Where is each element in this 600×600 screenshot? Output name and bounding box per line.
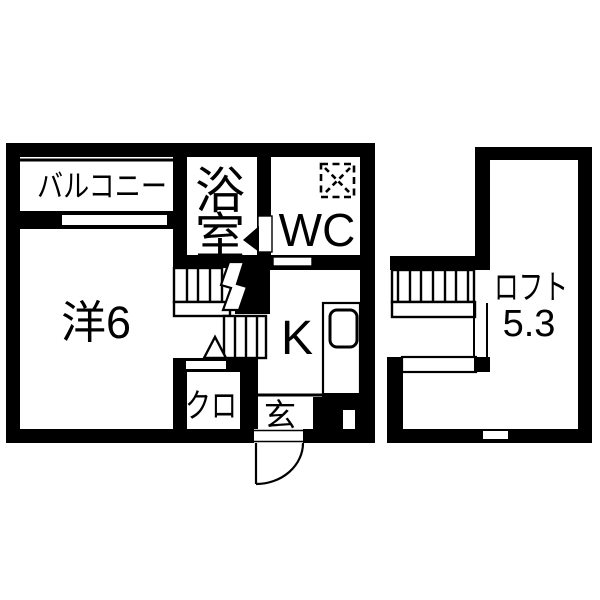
wall (355, 410, 365, 430)
sink-icon (330, 310, 357, 347)
loft-label: ロフト (494, 269, 568, 307)
stair-landing (174, 302, 230, 316)
stair-landing (392, 302, 475, 317)
floorplan-svg: バルコニー 洋6 浴 室 WC (0, 0, 600, 600)
bathroom-label-line2: 室 (195, 209, 245, 265)
door-direction-icon (243, 226, 259, 252)
wall (325, 410, 343, 430)
stair-up-arrow-icon (204, 337, 226, 358)
wc-door-slit (273, 257, 312, 266)
stair-upper-flight (174, 268, 222, 302)
staircase-1f (174, 262, 270, 358)
stair-lower-flight (224, 316, 266, 358)
entrance-label: 玄 (264, 397, 296, 433)
kitchen-label: K (281, 312, 313, 365)
closet-door-slit (186, 361, 226, 369)
bathroom: 浴 室 (173, 155, 272, 270)
floorplan-page: バルコニー 洋6 浴 室 WC (0, 0, 600, 600)
floor-1f-plan: バルコニー 洋6 浴 室 WC (6, 143, 375, 484)
wall (6, 429, 375, 443)
wall (475, 147, 490, 270)
loft-railing (402, 357, 476, 372)
balcony-label: バルコニー (37, 169, 167, 204)
staircase-loft (392, 270, 475, 317)
window-slit (62, 215, 167, 225)
wall (474, 357, 490, 372)
wall (578, 147, 592, 443)
dashed-box-icon (321, 164, 354, 197)
wc-room: WC (257, 164, 375, 270)
wc-label: WC (279, 204, 356, 256)
bath-door-slit (258, 216, 272, 252)
loft-size-label: 5.3 (503, 303, 556, 345)
entry-door-arc-icon (256, 443, 303, 484)
wall (390, 256, 490, 270)
loft-plan: ロフト 5.3 (387, 147, 592, 443)
wall (475, 147, 592, 160)
window-slit (483, 431, 508, 439)
wall (322, 393, 365, 410)
western-room-label: 洋6 (61, 297, 131, 348)
balcony: バルコニー (18, 160, 178, 229)
wall (313, 397, 325, 430)
wall (173, 155, 187, 268)
wall (6, 143, 20, 443)
closet-label: クロ (185, 387, 237, 424)
wall (6, 143, 375, 157)
wall (257, 155, 271, 270)
